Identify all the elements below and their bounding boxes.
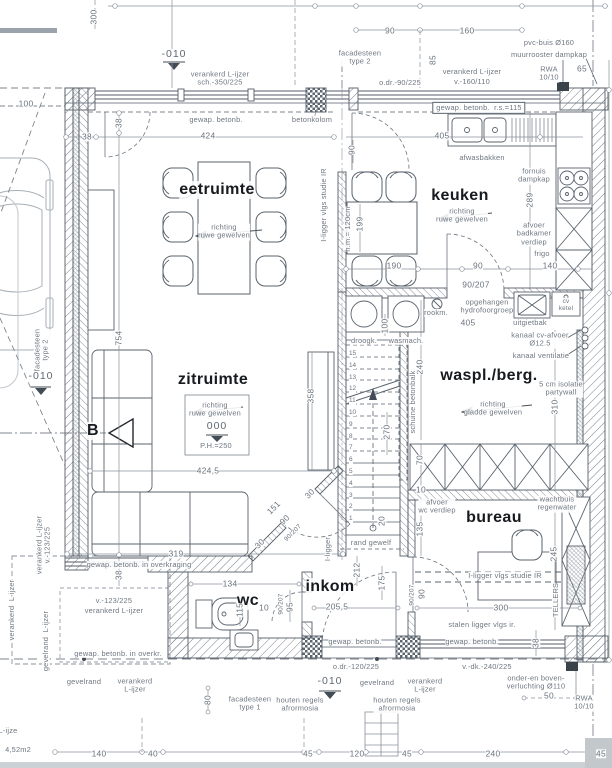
annotation-label: afvoer badkamer verdiep [517,222,551,247]
annotation-label: o.dr.-120/225 [333,663,379,671]
dimension-label: 90 [385,26,395,35]
room-label-inkom: inkom [305,578,354,596]
annotation-label: RWA 10/10 [574,695,594,712]
floorplan-page: eetruimtekeukenzitruimtewaspl./berg.bure… [0,0,612,768]
dimension-label: 212 [352,563,361,578]
dimension-label: 300 [494,603,509,612]
dimension-label: 90/207 [408,584,415,605]
dimension-label: 424,5 [197,466,219,475]
annotation-label: onder-en boven- verluchting Ø110 [507,675,566,692]
annotation-label: stalen ligger vlgs ir. [448,621,515,629]
annotation-label: verankerd L-ijzer v.-123/225 [36,516,53,574]
dimension-label: 205,5 [326,602,348,611]
dimension-label: 115 [235,603,244,617]
dimension-label: 90 [417,589,426,599]
annotation-label: verankerd L-ijzer [85,607,143,615]
dimension-label: 151 [265,499,282,516]
annotation-label: verankerd L-ijzer sch.-350/225 [191,71,249,88]
dimension-label: 45 [402,749,412,758]
annotation-label: muurrooster dampkap [511,51,587,59]
stair-step-number: 3 [349,493,353,499]
dimension-label: 90/207 [283,523,303,543]
dimension-label: 134 [223,579,238,588]
annotation-label: facadesteen type 2 [34,329,51,371]
dimension-label: 65 [577,64,587,73]
dimension-label: 45 [596,749,606,758]
dimension-label: 175 [377,576,386,591]
dimension-label: 70 [415,455,424,465]
dimension-label: 10 [416,485,426,494]
annotation-label: richting gladde gewelven [464,401,522,418]
dimension-label: 100 [380,319,389,334]
annotation-label: RWA 10/10 [539,66,559,83]
dimension-label: 240 [415,360,424,375]
annotation-label: betonkolom [292,116,332,124]
dimension-label: 405 [461,318,476,327]
stair-step-number: 2 [349,504,353,510]
dimension-label: 30 [303,487,317,501]
annotation-label: pvc-buis Ø160 [524,39,574,47]
dimension-label: 140 [543,261,558,270]
annotation-label: facadesteen type 1 [229,696,271,713]
annotation-label: houten regels afrormosia [373,697,420,714]
dimension-label: 100 [19,99,34,108]
dimension-label: 90 [347,145,356,155]
dimension-label: 20 [377,516,386,526]
annotation-label: houten regels afrormosia [276,697,323,714]
annotation-label: o.dr.-90/225 [379,79,421,87]
stair-step-number: 15 [349,351,356,357]
dimension-label: 40 [148,749,158,758]
annotation-label: -010 [161,49,186,61]
dimension-label: 135 [415,522,424,537]
annotation-label: cv ketel [559,298,574,312]
dimension-label: 405 [435,131,450,140]
annotation-label: I-ligger vlgs studie IR [320,168,328,242]
dimension-label: 289 [525,193,534,208]
stair-step-number: 6 [349,457,353,463]
dimension-label: 30 [253,537,267,551]
section-marker-b: B [87,422,99,440]
annotation-label: v.-160/110 [454,78,490,86]
stair-step-number: 13 [349,375,356,381]
annotation-label: L-ijze [0,727,17,735]
annotation-label: schuine betonbalk [409,371,417,434]
annotation-label: 000 [207,421,228,433]
annotation-label: richting ruwe gewelven [189,402,241,419]
dimension-label: 90/207 [462,280,489,289]
annotation-label: fornuis dampkap [518,168,550,185]
stair-step-number: 8 [349,434,353,440]
dimension-label: 160 [460,26,475,35]
stair-step-number: 9 [349,422,353,428]
stair-step-number: 4 [349,481,353,487]
stair-step-number: 7 [349,445,353,451]
dimension-label: 120 [350,749,365,758]
labels-layer: eetruimtekeukenzitruimtewaspl./berg.bure… [0,0,612,768]
dimension-label: 45 [303,749,313,758]
room-label-zitruimte: zitruimte [178,371,248,389]
dimension-label: 38 [82,132,92,141]
annotation-label: verankerd L-ijzer [118,678,153,695]
dimension-label: 38 [114,570,123,580]
annotation-label: gewap. betonb. in overkr. [74,650,162,658]
stair-step-number: 11 [349,398,356,404]
dimension-label: 310 [550,400,559,415]
dimension-label: 358 [306,389,315,404]
dimension-label: 754 [114,331,123,346]
annotation-label: verankerd L-ijzer [408,678,443,695]
dimension-label: 270 [382,425,391,440]
annotation-label: gewap. betonb. [189,116,242,124]
annotation-label: verankerd L-ijzer [8,580,16,641]
annotation-label: wachtbuis regenwater [538,496,577,513]
dimension-label: 85 [428,55,437,65]
stair-step-number: 10 [349,410,356,416]
annotation-label: 4,52m2 [5,746,31,754]
dimension-label: 140 [92,749,107,758]
dimension-label: 319 [169,549,184,558]
stair-step-number: 5 [349,469,353,475]
dimension-label: 300 [89,10,98,25]
dimension-label: 90 [278,513,292,527]
annotation-label: uitgietbak [513,319,547,327]
annotation-label: gevelrand [67,678,101,686]
stair-step-number: 14 [349,363,356,369]
dimension-label: 90 [473,261,483,270]
annotation-label: verankerd L-ijzer [443,68,501,76]
annotation-label: droogk. [351,337,377,345]
room-label-bureau: bureau [466,509,522,527]
room-label-wc: wc [237,592,259,610]
annotation-label: -010 [317,676,342,688]
annotation-label: richting ruwe gewelven [198,224,250,241]
dimension-label: 80 [203,695,212,705]
annotation-label: frigo [534,250,549,258]
dimension-label: 38 [114,118,123,128]
annotation-label: P.H.=250 [200,442,232,450]
dimension-label: 190 [387,261,402,270]
annotation-label: gewap. betonb. r.s.=115 [432,102,525,114]
annotation-label: afvoer wc verdiep [418,499,455,516]
room-label-keuken: keuken [431,187,489,205]
dimension-label: 424 [201,131,216,140]
stair-step-number: 1 [349,516,353,522]
dimension-label: 199 [355,217,364,232]
annotation-label: v.-123/225 [96,597,132,605]
annotation-label: I-ligger [324,537,332,561]
room-label-eetruimte: eetruimte [179,181,255,199]
annotation-label: richting ruwe gewelven [436,208,488,225]
annotation-label: afwasbakken [459,154,504,162]
annotation-label: -010 [28,371,53,383]
dimension-label: 38 [531,638,540,648]
dimension-label: 50 [544,691,554,700]
dimension-label: 10 [259,603,269,612]
annotation-label: gewap. betonb. [445,638,498,646]
dimension-label: 90/207 [277,593,284,614]
annotation-label: TELLERS [552,583,560,617]
annotation-label: h.m.= 120cm [344,206,352,251]
annotation-label: kanaal ventilatie [513,352,569,360]
annotation-label: facadesteen type 2 [339,50,381,67]
annotation-label: wasmach. [389,337,424,345]
annotation-label: rand gewelf [351,539,391,547]
annotation-label: opgehangen hydrofoorgroep [461,299,514,316]
annotation-label: 5 cm isolatie partywall [539,381,583,398]
annotation-label: rookm. [424,309,448,317]
room-label-waspl-berg: waspl./berg. [440,367,537,385]
annotation-label: kanaal cv-afvoer Ø12.5 [511,332,568,349]
dimension-label: 95 [285,602,294,612]
dimension-label: 240 [486,749,501,758]
stair-step-number: 12 [349,386,356,392]
annotation-label: gevelrand L-ijzer [42,611,50,671]
annotation-label: gewap. betonb. [328,638,381,646]
annotation-label: I-ligger vlgs studie IR [468,572,542,580]
annotation-label: gewap. betonb. in overkraging [87,561,192,569]
annotation-label: v.-dk.-240/225 [462,663,512,671]
annotation-label: gevelrand [360,679,394,687]
dimension-label: 245 [549,547,558,562]
